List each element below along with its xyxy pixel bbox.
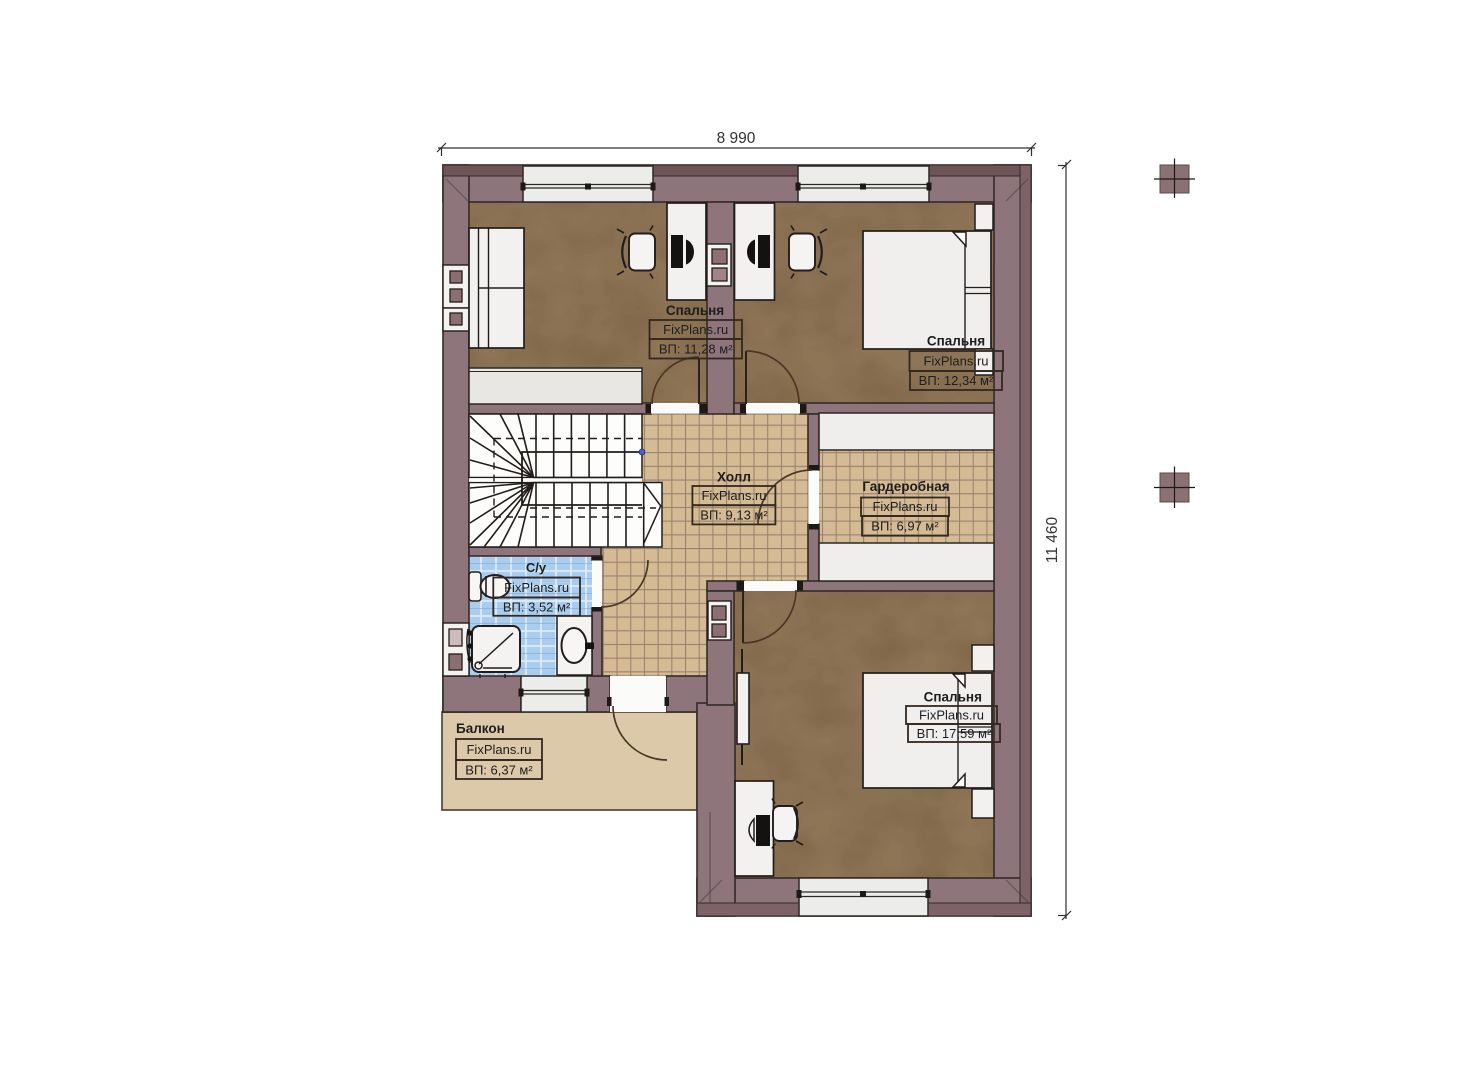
svg-text:FixPlans.ru: FixPlans.ru: [701, 488, 766, 503]
svg-text:ВП: 12,34 м²: ВП: 12,34 м²: [919, 373, 994, 388]
svg-text:ВП: 3,52 м²: ВП: 3,52 м²: [503, 600, 571, 615]
svg-text:ВП: 9,13 м²: ВП: 9,13 м²: [700, 508, 768, 523]
svg-text:ВП: 6,97 м²: ВП: 6,97 м²: [871, 519, 939, 534]
svg-text:Балкон: Балкон: [456, 721, 505, 736]
svg-text:FixPlans.ru: FixPlans.ru: [923, 354, 988, 369]
svg-text:Спальня: Спальня: [666, 303, 724, 318]
svg-text:ВП: 6,37 м²: ВП: 6,37 м²: [465, 763, 533, 778]
svg-text:FixPlans.ru: FixPlans.ru: [663, 322, 728, 337]
svg-text:Гардеробная: Гардеробная: [862, 479, 949, 494]
svg-text:8 990: 8 990: [717, 130, 756, 147]
svg-text:Холл: Холл: [717, 470, 751, 485]
svg-text:FixPlans.ru: FixPlans.ru: [872, 499, 937, 514]
svg-text:11 460: 11 460: [1044, 516, 1061, 563]
svg-text:ВП: 17,59 м²: ВП: 17,59 м²: [917, 726, 992, 741]
svg-text:Спальня: Спальня: [924, 690, 982, 705]
svg-text:ВП: 11,28 м²: ВП: 11,28 м²: [659, 342, 733, 357]
svg-text:С/у: С/у: [526, 560, 547, 575]
svg-text:FixPlans.ru: FixPlans.ru: [466, 742, 531, 757]
svg-text:FixPlans.ru: FixPlans.ru: [919, 708, 984, 723]
svg-text:Спальня: Спальня: [927, 334, 985, 349]
svg-text:FixPlans.ru: FixPlans.ru: [504, 580, 569, 595]
